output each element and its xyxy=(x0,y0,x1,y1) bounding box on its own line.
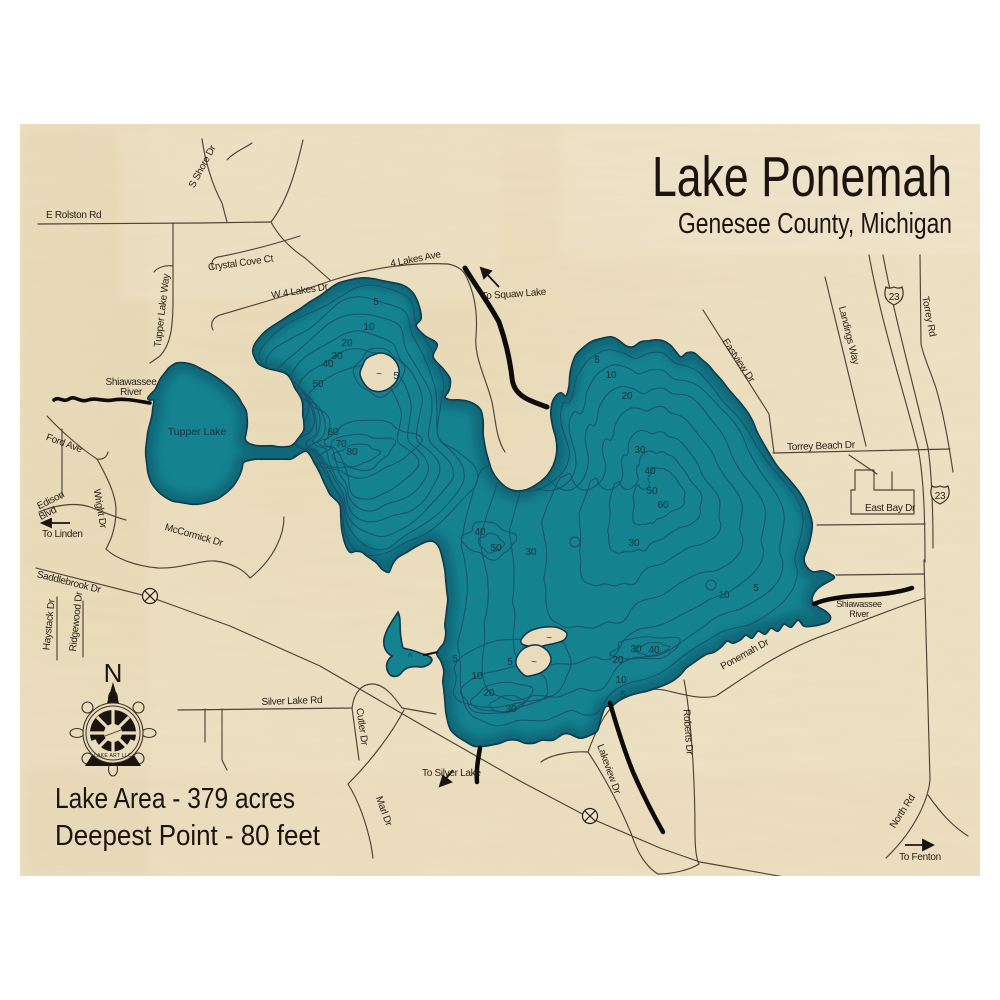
svg-text:Shiawassee: Shiawassee xyxy=(836,599,882,609)
svg-text:40: 40 xyxy=(474,527,486,538)
svg-text:Lake Area - 379 acres: Lake Area - 379 acres xyxy=(55,783,295,815)
svg-text:River: River xyxy=(849,609,869,619)
svg-text:5: 5 xyxy=(393,371,399,382)
svg-text:Lake Ponemah: Lake Ponemah xyxy=(652,145,952,209)
svg-text:80: 80 xyxy=(346,447,358,458)
svg-text:5: 5 xyxy=(507,657,513,668)
svg-text:LAKE ART LLC: LAKE ART LLC xyxy=(94,753,132,759)
svg-text:Tupper Lake: Tupper Lake xyxy=(168,426,227,438)
svg-text:40: 40 xyxy=(648,645,660,656)
svg-text:30: 30 xyxy=(630,644,642,655)
svg-text:5: 5 xyxy=(594,355,600,366)
svg-text:40: 40 xyxy=(644,466,656,477)
svg-text:E Rolston Rd: E Rolston Rd xyxy=(46,210,101,221)
svg-text:70: 70 xyxy=(335,439,347,450)
svg-text:60: 60 xyxy=(657,500,669,511)
svg-text:^: ^ xyxy=(408,652,413,663)
svg-text:20: 20 xyxy=(341,338,353,349)
svg-text:30: 30 xyxy=(525,547,537,558)
svg-text:10: 10 xyxy=(718,590,730,601)
svg-text:30: 30 xyxy=(505,704,517,715)
svg-text:East Bay Dr: East Bay Dr xyxy=(865,503,916,514)
svg-text:Silver Lake Rd: Silver Lake Rd xyxy=(261,695,322,708)
svg-text:Deepest Point - 80 feet: Deepest Point - 80 feet xyxy=(55,820,320,852)
svg-text:20: 20 xyxy=(612,655,624,666)
svg-text:10: 10 xyxy=(471,671,483,682)
svg-text:10: 10 xyxy=(363,322,375,333)
svg-text:~: ~ xyxy=(376,369,382,380)
svg-text:To Silver Lake: To Silver Lake xyxy=(422,768,481,779)
svg-text:23: 23 xyxy=(889,292,900,303)
svg-text:23: 23 xyxy=(935,491,946,502)
svg-text:20: 20 xyxy=(621,391,633,402)
svg-text:10: 10 xyxy=(615,675,627,686)
svg-text:40: 40 xyxy=(322,359,334,370)
svg-text:50: 50 xyxy=(646,486,658,497)
svg-text:To Linden: To Linden xyxy=(42,529,83,540)
svg-text:~: ~ xyxy=(546,633,552,644)
svg-text:5: 5 xyxy=(753,583,759,594)
svg-text:60: 60 xyxy=(327,427,339,438)
svg-text:Genesee County, Michigan: Genesee County, Michigan xyxy=(678,208,952,240)
svg-text:30: 30 xyxy=(628,538,640,549)
svg-text:50: 50 xyxy=(312,379,324,390)
svg-text:5: 5 xyxy=(620,690,626,701)
svg-text:River: River xyxy=(120,387,143,398)
svg-text:30: 30 xyxy=(634,445,646,456)
svg-text:To Fenton: To Fenton xyxy=(899,852,941,863)
svg-text:~: ~ xyxy=(531,657,537,668)
svg-text:10: 10 xyxy=(605,370,617,381)
svg-text:20: 20 xyxy=(483,688,495,699)
svg-text:50: 50 xyxy=(490,543,502,554)
svg-text:5: 5 xyxy=(373,297,379,308)
svg-text:5: 5 xyxy=(452,654,458,665)
